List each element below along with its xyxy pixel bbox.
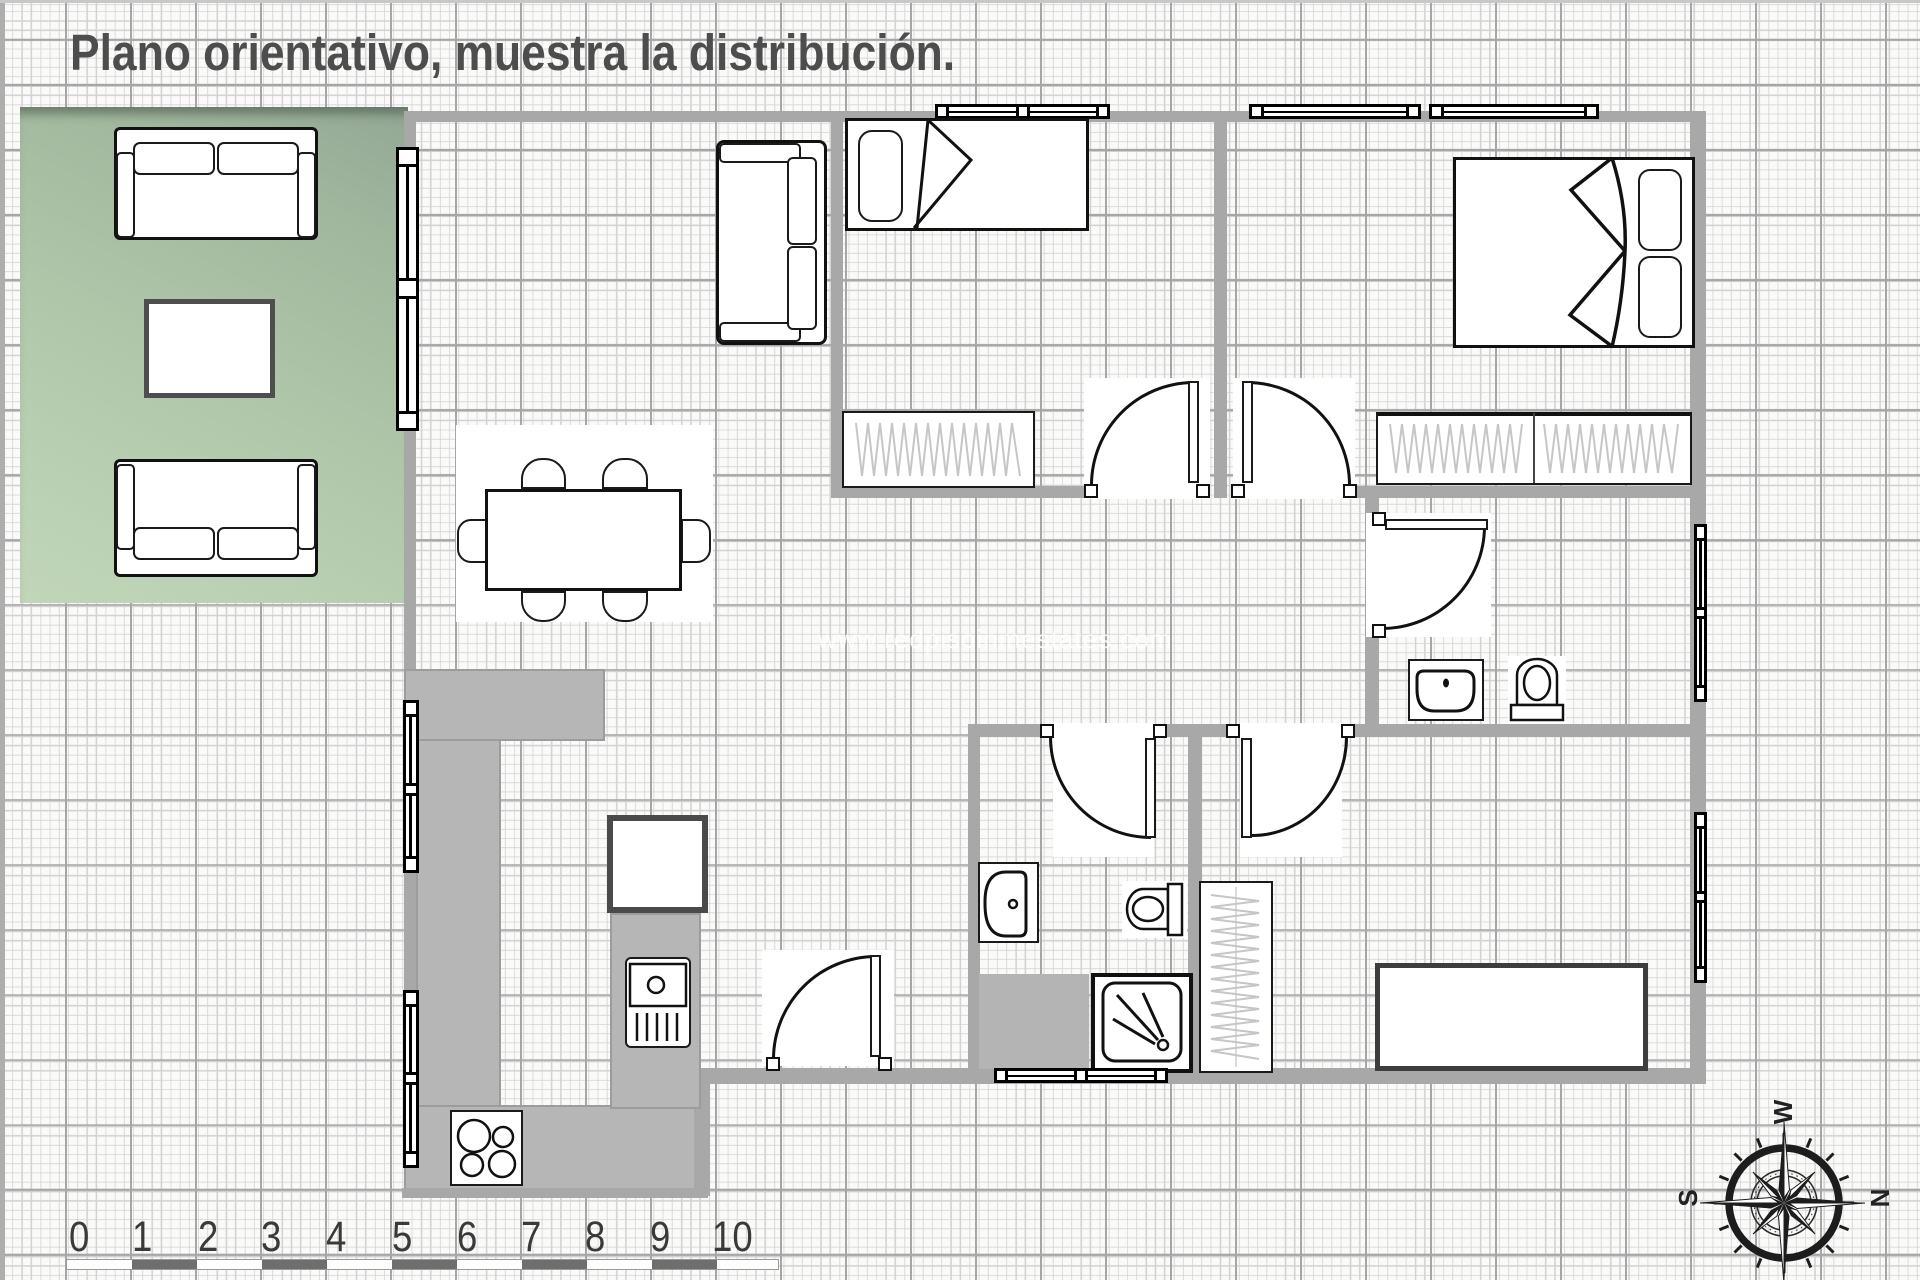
svg-text:S: S [1673,1189,1703,1206]
svg-text:N: N [1865,1189,1895,1208]
svg-text:W: W [1768,1099,1798,1124]
